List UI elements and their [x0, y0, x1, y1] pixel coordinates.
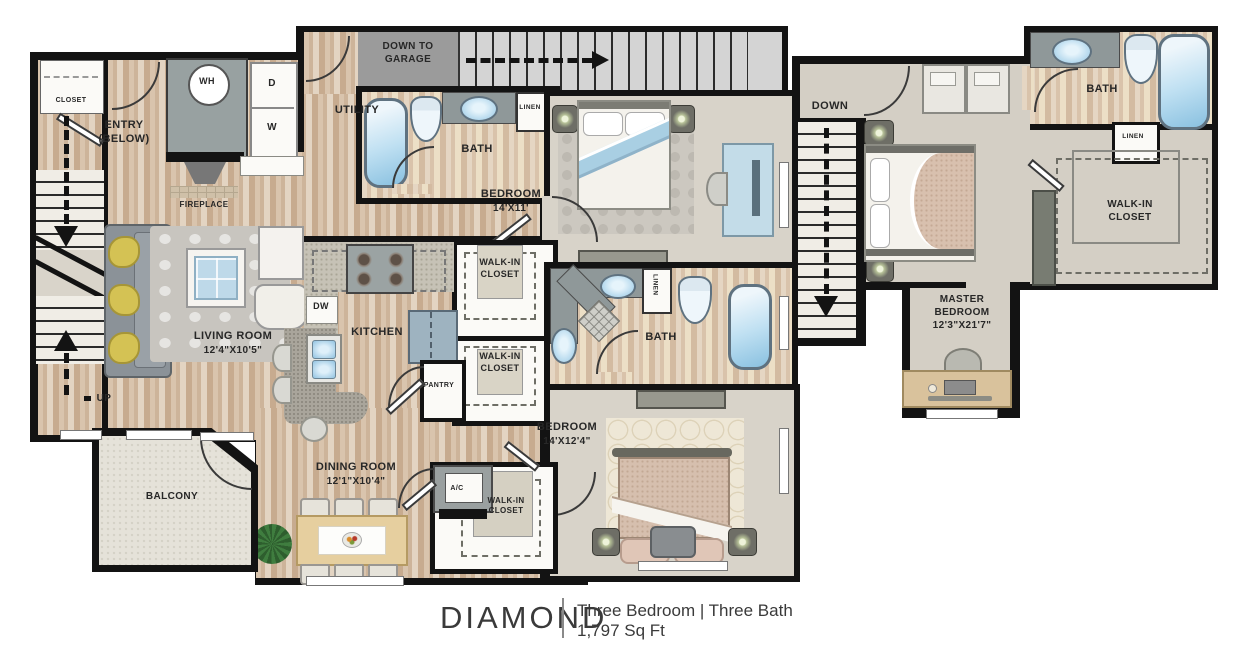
bath1-linen-label: LINEN: [519, 104, 541, 112]
bath2-tub: [728, 284, 772, 370]
master-desk: [902, 370, 1012, 408]
floor2-master-doorgap: [966, 280, 1010, 292]
dining-centerpiece: [342, 532, 362, 548]
kitchen-label: KITCHEN: [351, 325, 403, 339]
bath2-sink-left: [551, 328, 577, 364]
wic4-shelf: [1072, 150, 1180, 244]
entry-arrow-up: [54, 330, 78, 351]
dw-label: DW: [313, 301, 329, 313]
entry-label: ENTRY(BELOW): [98, 118, 149, 147]
master-tv-unit: [1032, 190, 1056, 286]
wic3-label: WALK-INCLOSET: [487, 496, 524, 517]
bedroom2-name: BEDROOM: [537, 421, 597, 433]
bedroom1-nightstand-right: [668, 105, 695, 133]
entry-line2: (BELOW): [98, 133, 149, 145]
entry-closet: [40, 60, 104, 114]
master-line2: BEDROOM: [934, 307, 989, 318]
bedroom1-name: BEDROOM: [481, 188, 541, 200]
sofa-pillow-1: [108, 236, 140, 268]
entry-dash-top: [64, 116, 69, 224]
floor-plan-canvas: DOWN TOGARAGE: [0, 0, 1240, 654]
wic3-room: [430, 462, 558, 574]
bedroom1-dims: 14'X11': [493, 203, 529, 214]
wic2-line2: CLOSET: [481, 363, 520, 373]
bedroom2-canopy-bar: [612, 448, 732, 457]
master-blanket: [910, 153, 976, 249]
bath3-label: BATH: [1086, 82, 1117, 96]
sofa-pillow-2: [108, 284, 140, 316]
bedroom2-dresser: [636, 390, 726, 409]
dining-table: [296, 515, 408, 566]
kitchen-fridge: [408, 310, 458, 364]
kitchen-island-foot: [284, 392, 368, 424]
bedroom1-desk-chair: [706, 172, 728, 206]
wic3-line2: CLOSET: [489, 506, 524, 515]
bath2-linen-label: LINEN: [650, 274, 658, 296]
master-dresser-2: [966, 64, 1010, 114]
garage-arrow-dashes: [466, 58, 592, 63]
title-divider: [562, 598, 564, 638]
master-dresser-1-drawer: [930, 72, 956, 86]
utility-console: [240, 156, 304, 176]
bedroom2-bench: [650, 526, 696, 558]
entry-arrow-down: [54, 226, 78, 247]
window-bedroom2-right: [779, 428, 789, 494]
master-pillow-2: [870, 204, 890, 248]
floor2-bath-doorgap: [1022, 66, 1034, 110]
wic2-label: WALK-INCLOSET: [479, 351, 520, 374]
ac-wall-strip: [439, 509, 487, 519]
bedroom1-bed: [577, 100, 671, 210]
wic2-room: [452, 336, 558, 426]
bedroom1-bed-headboard: [579, 102, 669, 109]
kitchen-stove: [346, 244, 414, 294]
island-sink-basin-1: [312, 340, 336, 359]
closet-label: CLOSET: [56, 96, 87, 105]
garage-stairs-label: DOWN TOGARAGE: [383, 40, 434, 66]
master-shelf-line: [928, 396, 992, 401]
master-bed-rail-bottom: [866, 249, 974, 256]
bedroom2-nightstand-left: [592, 528, 620, 556]
window-master-bottom: [926, 409, 998, 419]
kitchen-fridge-divider: [430, 312, 432, 358]
wic1-line2: CLOSET: [481, 269, 520, 279]
living-room-label: LIVING ROOM12'4"X10'5": [194, 329, 272, 358]
wic2-line1: WALK-IN: [479, 351, 520, 361]
entry-dash-bottom: [64, 353, 69, 395]
wic1-label: WALK-INCLOSET: [479, 257, 520, 280]
wh-label: WH: [199, 76, 215, 88]
bath2-label: BATH: [645, 330, 676, 344]
master-dresser-1: [922, 64, 966, 114]
bedroom2-dims: 14'X12'4": [543, 436, 591, 447]
dining-dims: 12'1"X10'4": [327, 476, 386, 487]
closet-rod-dashed: [44, 76, 98, 78]
sofa-pillow-3: [108, 332, 140, 364]
fireplace-back: [166, 152, 244, 162]
up-label: UP: [97, 392, 112, 405]
fireplace-label: FIREPLACE: [180, 200, 229, 210]
window-left-wall-2: [126, 430, 192, 440]
living-name: LIVING ROOM: [194, 330, 272, 342]
master-bedroom-label: MASTERBEDROOM12'3"X21'7": [933, 293, 992, 332]
entry-line1: ENTRY: [105, 119, 144, 131]
wic1-room: [452, 240, 558, 342]
living-dims: 12'4"X10'5": [204, 345, 263, 356]
fireplace-hearth: [170, 186, 238, 198]
kitchen-island-sink-tray: [306, 334, 342, 384]
master-pillow-1: [870, 158, 890, 202]
balcony-door-threshold: [200, 432, 254, 441]
bedroom2-bed: [612, 448, 732, 564]
island-stool-2: [272, 376, 292, 404]
window-bath2-right: [779, 296, 789, 350]
coffee-table-glass: [194, 256, 238, 300]
bedroom2-nightstand-right: [728, 528, 757, 556]
window-left-wall-1: [60, 430, 102, 440]
plan-configuration: Three Bedroom | Three Bath: [577, 601, 793, 621]
window-bedroom1-right: [779, 162, 789, 228]
bedroom1-monitor: [752, 160, 760, 216]
master-dresser-2-drawer: [974, 72, 1000, 86]
bedroom1-label: BEDROOM14'X11': [481, 187, 541, 216]
master-desk-lamp: [928, 384, 937, 393]
wic4-label: WALK-INCLOSET: [1107, 198, 1153, 224]
ac-label: A/C: [450, 484, 463, 493]
garage-line1: DOWN TO: [383, 41, 434, 52]
dryer-label: D: [268, 77, 276, 90]
master-line1: MASTER: [940, 294, 985, 305]
plan-area: 1,797 Sq Ft: [577, 621, 665, 641]
window-dining-bottom: [306, 576, 404, 586]
armchair: [254, 284, 308, 330]
down-label: DOWN: [812, 99, 848, 113]
bedroom1-pillow-left: [583, 112, 623, 136]
floor2-wic-doorgap: [1022, 134, 1034, 178]
island-sink-basin-2: [312, 360, 336, 379]
garage-line2: GARAGE: [385, 54, 431, 65]
potted-plant: [252, 524, 292, 564]
master-desk-laptop: [944, 380, 976, 395]
dining-room-label: DINING ROOM12'1"X10'4": [316, 460, 396, 489]
utility-label: UTILITY: [335, 103, 379, 117]
dining-name: DINING ROOM: [316, 461, 396, 473]
bedroom1-desk: [722, 143, 774, 237]
bedroom1-nightstand-left: [552, 105, 578, 133]
floor2-stair-arrow: [814, 296, 838, 317]
master-bed: [864, 144, 976, 262]
pantry-label: PANTRY: [424, 381, 454, 390]
end-table: [258, 226, 304, 280]
dryer-washer-divider: [250, 107, 294, 109]
master-bed-rail-top: [866, 146, 974, 153]
wic4-line1: WALK-IN: [1107, 199, 1153, 210]
bath1-sink: [460, 96, 498, 122]
bath3-tub: [1158, 34, 1210, 130]
wic3-line1: WALK-IN: [487, 496, 524, 505]
bath2-sink-top: [600, 274, 636, 299]
bedroom2-label: BEDROOM14'X12'4": [537, 420, 597, 449]
garage-arrow-head: [592, 51, 609, 69]
garage-stair-landing-end: [748, 32, 782, 94]
island-stool-1: [272, 344, 292, 372]
master-nightstand-top: [864, 120, 894, 146]
island-round-stool: [300, 416, 328, 442]
bath1-label: BATH: [461, 142, 492, 156]
bedroom1-door-gap: [542, 196, 552, 240]
wic4-line2: CLOSET: [1109, 212, 1152, 223]
entry-dash-dot: [84, 396, 91, 401]
pantry-room: [420, 360, 466, 422]
floor2-stair-dashes: [824, 128, 829, 294]
bath3-sink: [1052, 38, 1092, 65]
wic1-line1: WALK-IN: [479, 257, 520, 267]
washer-label: W: [267, 121, 277, 134]
window-bedroom2-bottom: [638, 561, 728, 571]
balcony-label: BALCONY: [146, 490, 198, 503]
linen3-label: LINEN: [1122, 133, 1144, 141]
master-dims: 12'3"X21'7": [933, 320, 992, 331]
